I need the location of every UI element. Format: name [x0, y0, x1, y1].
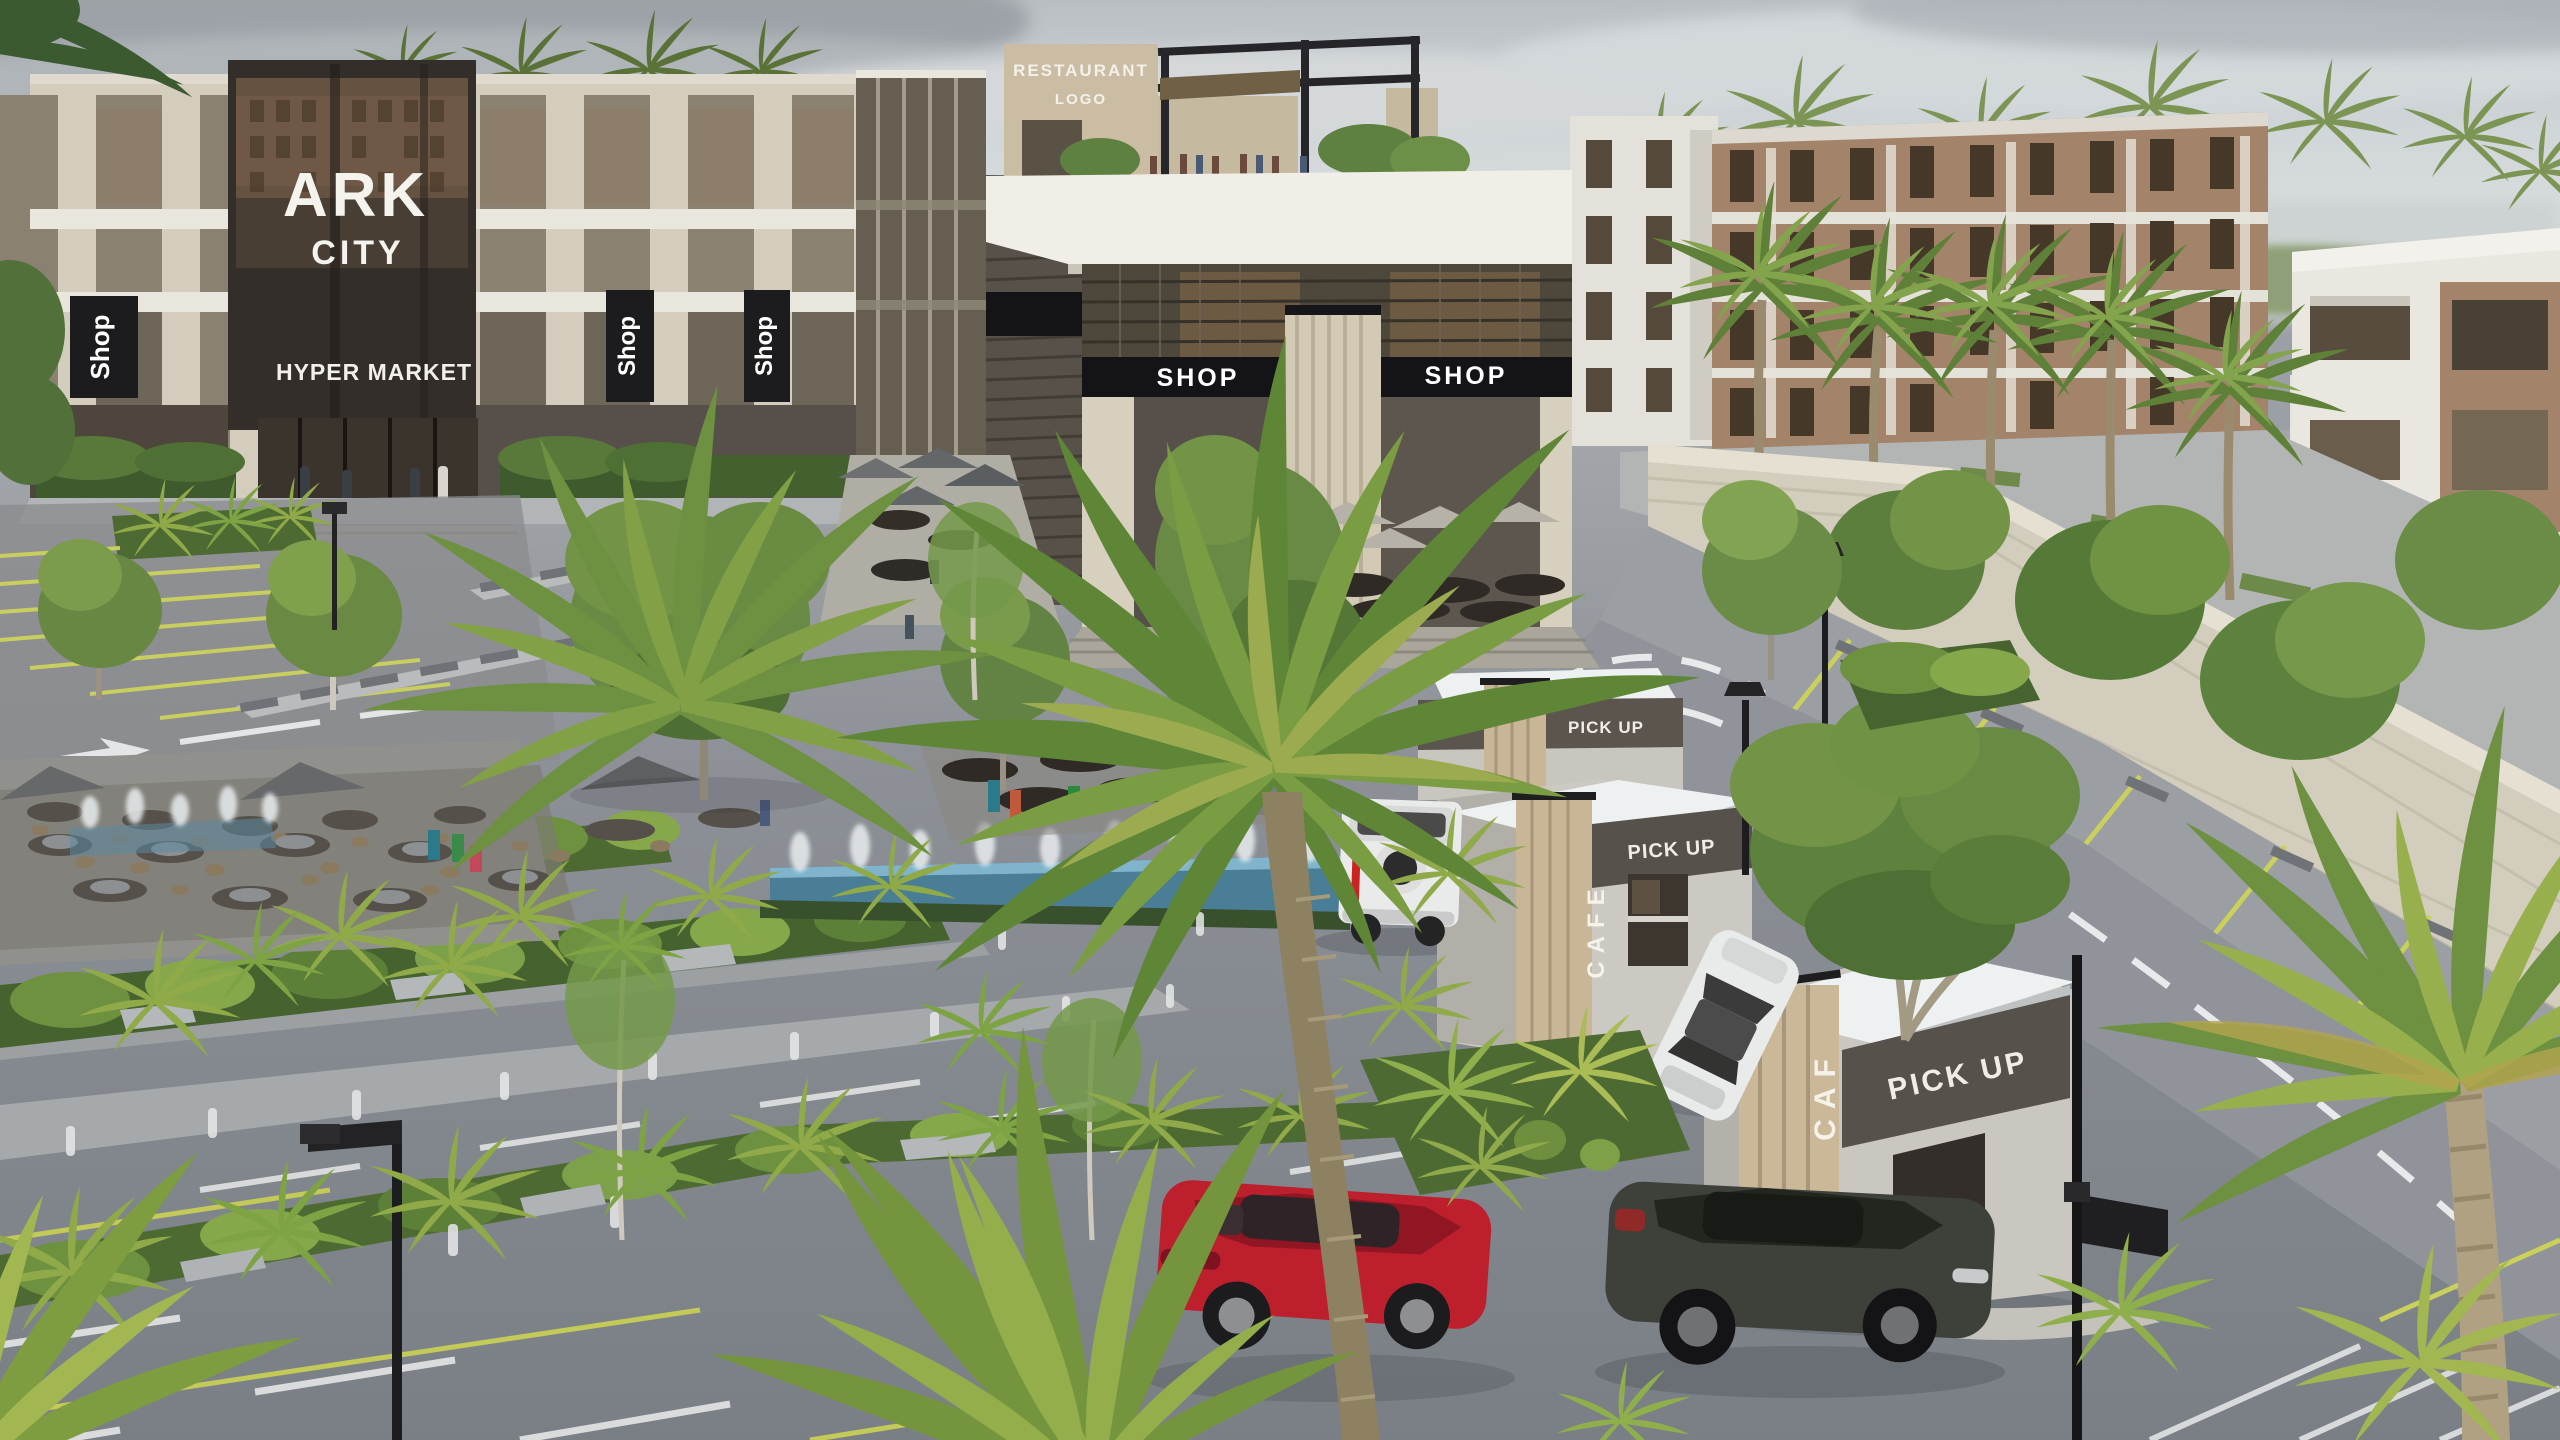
svg-text:LOGO: LOGO [1055, 91, 1107, 108]
svg-text:RESTAURANT: RESTAURANT [1013, 61, 1149, 80]
svg-text:SHOP: SHOP [1425, 362, 1508, 390]
svg-text:Shop: Shop [751, 316, 778, 376]
svg-text:SHOP: SHOP [1157, 364, 1240, 392]
svg-text:HYPER MARKET: HYPER MARKET [276, 359, 472, 385]
svg-text:ARK: ARK [283, 161, 429, 230]
svg-text:CITY: CITY [311, 234, 404, 272]
svg-text:Shop: Shop [85, 315, 115, 380]
svg-text:PICK UP: PICK UP [1568, 718, 1644, 737]
svg-text:CAFE: CAFE [1583, 881, 1610, 978]
svg-text:Shop: Shop [614, 316, 641, 376]
svg-text:CAF: CAF [1809, 1049, 1842, 1141]
